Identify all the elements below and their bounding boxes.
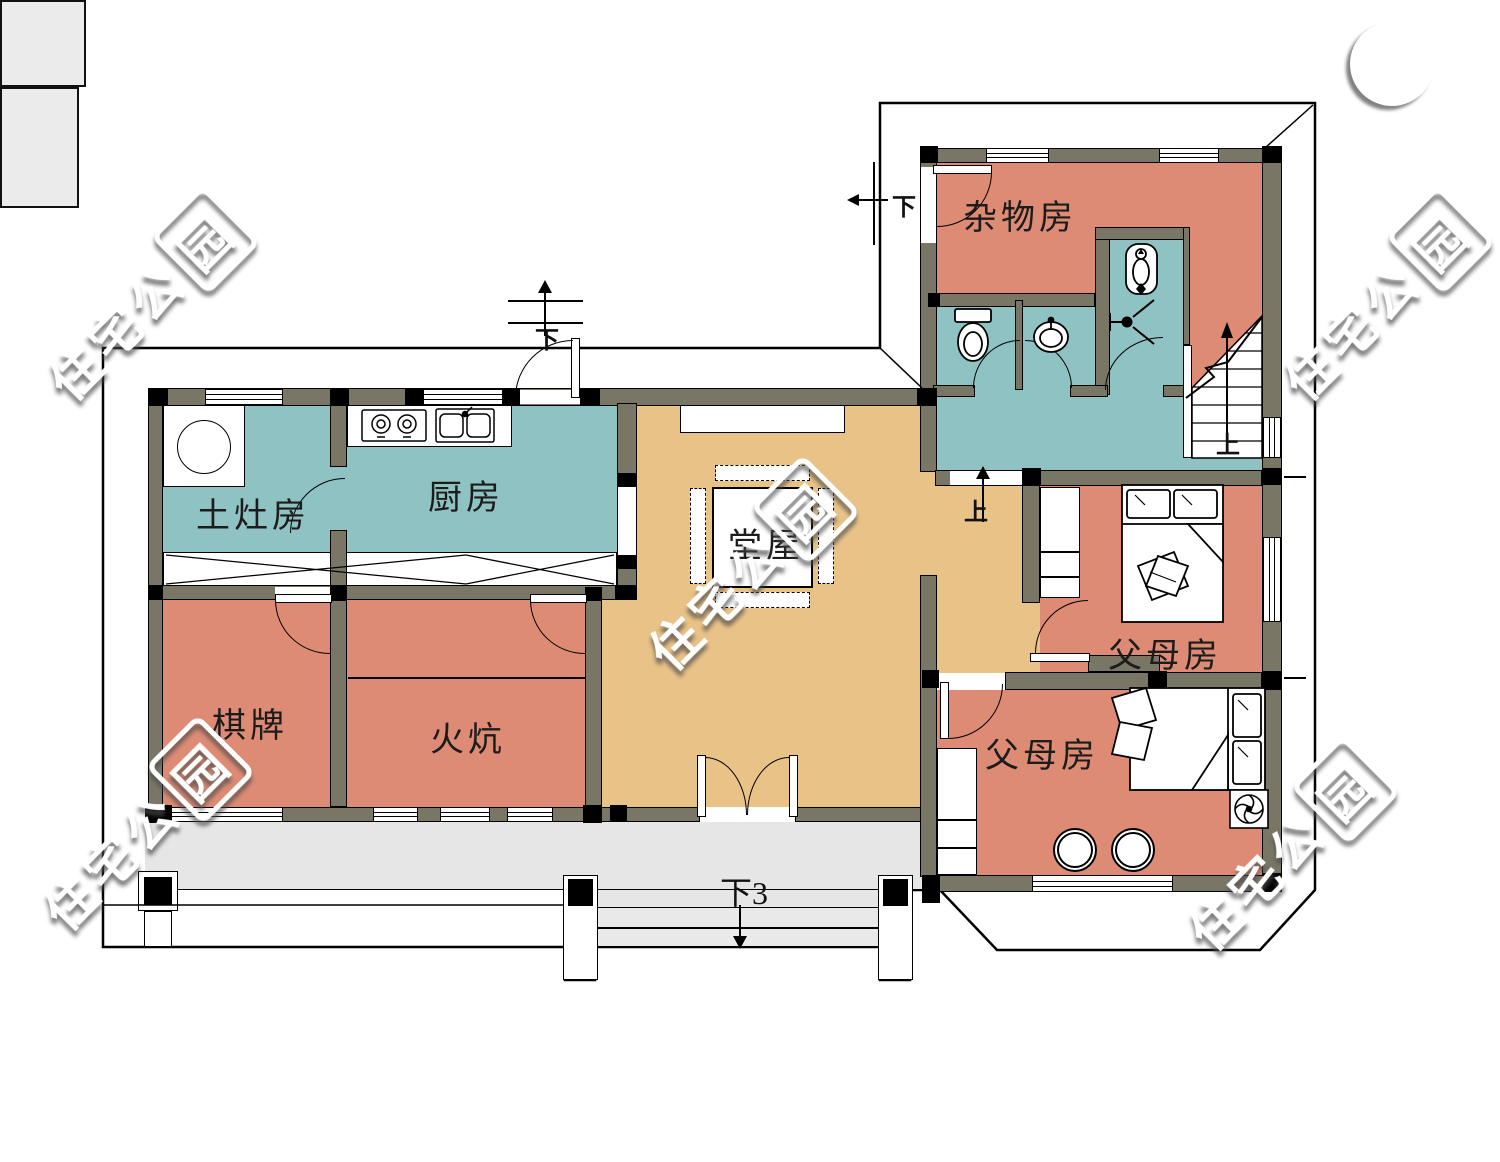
parents-upper-door-leaf: [1030, 653, 1090, 662]
wall-hall-east-upper: [1022, 470, 1040, 603]
label-kang: 火炕: [430, 712, 506, 761]
column: [583, 805, 602, 823]
wall-bath-south-b: [1070, 385, 1108, 397]
wok-stove-icon: [177, 420, 231, 474]
column: [1262, 146, 1282, 163]
column: [617, 555, 637, 569]
wall-hall-east-lower: [920, 575, 937, 877]
window-parents-lower-s: [1032, 875, 1173, 892]
window-parents-upper-e: [1263, 537, 1281, 622]
wardrobe-cell: [937, 848, 977, 875]
window-kitchen-n: [423, 389, 503, 405]
column: [148, 585, 163, 600]
wall-shower-west: [1095, 227, 1110, 395]
wardrobe-cell: [937, 748, 977, 820]
porch-pillar-left-cap: [568, 879, 593, 906]
label-kitchen: 厨房: [428, 470, 504, 519]
window-wing-n1: [986, 148, 1049, 163]
wall-bath-south-a: [933, 385, 975, 397]
hall-console: [680, 405, 845, 433]
window-kang-s2: [440, 807, 490, 822]
up-arrow-head: [976, 466, 990, 479]
wardrobe-cell: [1040, 487, 1080, 552]
column: [615, 585, 637, 600]
window-stove-n: [205, 389, 283, 405]
column: [917, 388, 937, 406]
column: [610, 805, 627, 822]
entry-arrow-head: [733, 936, 747, 949]
column: [405, 388, 423, 406]
wardrobe-cell: [1040, 552, 1080, 577]
walkway-column: [144, 877, 172, 905]
column: [617, 473, 637, 487]
label-parents-lower: 父母房: [985, 728, 1099, 777]
walkway-column-base: [144, 911, 172, 947]
label-up-stairs: 上: [1216, 425, 1240, 460]
window-wing-n2: [1159, 148, 1219, 163]
column: [585, 587, 602, 601]
corridor-area: [935, 390, 1262, 470]
side-stoop-step: [873, 162, 875, 245]
column: [330, 585, 347, 600]
column: [1262, 468, 1282, 485]
column: [1022, 468, 1041, 486]
porch-area: [145, 822, 922, 890]
column: [920, 146, 938, 163]
label-storage: 杂物房: [963, 190, 1077, 239]
label-parents-upper: 父母房: [1108, 628, 1222, 677]
column: [922, 670, 939, 688]
watermark-logo-circle: [1350, 22, 1434, 106]
wardrobe-cell: [1040, 577, 1080, 598]
wall-east: [1262, 148, 1282, 892]
label-earth-stove: 土灶房: [196, 488, 310, 537]
window-kang-s3: [507, 807, 553, 822]
stove-bench: [163, 552, 617, 587]
stair-stringer: [1183, 345, 1192, 458]
down-back-arrow-head: [538, 280, 552, 293]
down-side-arrow-head: [847, 194, 859, 206]
wall-shower-north: [1095, 227, 1190, 240]
column: [922, 875, 940, 903]
down-side-arrow-line: [858, 199, 888, 201]
storage-door-opening: [921, 167, 936, 243]
column: [1262, 671, 1282, 690]
porch-pillar-right-cap: [883, 879, 908, 906]
wall-kang-east: [585, 600, 602, 822]
wall-chess-kang: [330, 600, 347, 807]
wall-shower-east: [1183, 227, 1190, 345]
column: [330, 388, 349, 406]
kitchen-hall-opening: [618, 487, 636, 555]
label-down-side: 下: [892, 187, 916, 222]
label-down-back: 下: [535, 320, 559, 355]
kitchen-counter: [347, 405, 512, 447]
label-up-hall: 上: [964, 492, 988, 527]
column: [148, 388, 168, 406]
wall-south-b: [795, 807, 922, 822]
column: [928, 293, 940, 307]
column: [580, 388, 600, 406]
wall-stove-kitchen-n: [330, 405, 347, 467]
wardrobe-cell: [937, 820, 977, 848]
wall-stove-kitchen-s: [330, 530, 347, 587]
window-stair-e: [1263, 417, 1281, 458]
label-down3: 下3: [720, 868, 768, 914]
entry-door-leaf-right: [789, 755, 798, 817]
floor-plan: 杂物房 土灶房 厨房 堂屋 父母房 父母房 棋牌 火炕 上 上 下 下 下3 住…: [0, 0, 1500, 1162]
window-kang-s1: [373, 807, 418, 822]
